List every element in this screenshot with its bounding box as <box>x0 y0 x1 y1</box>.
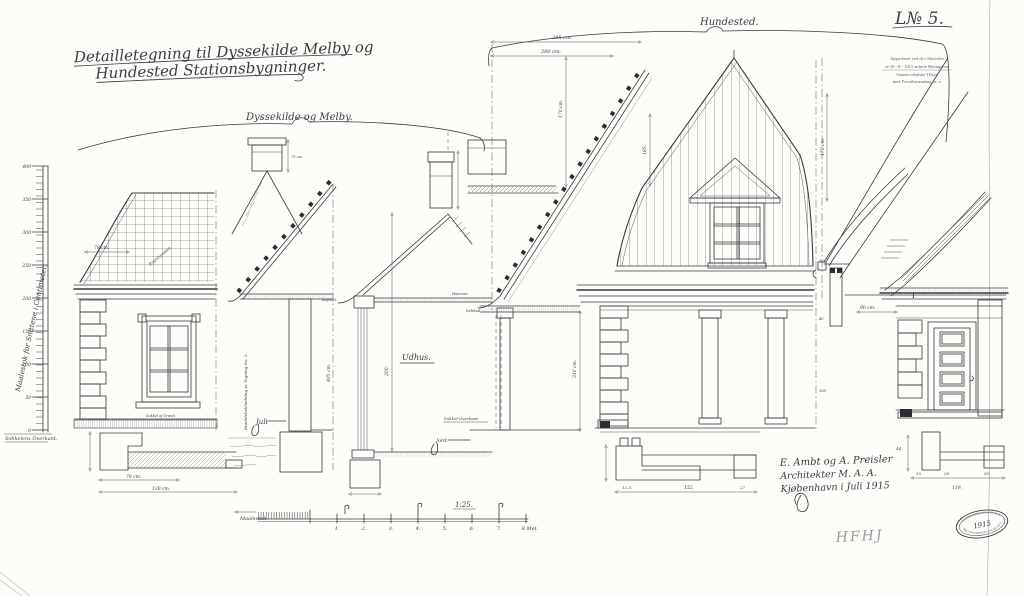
ruler-base-label: Sokkelens Overkant. <box>5 436 58 442</box>
scalebar-tick-7: 7. <box>497 526 502 532</box>
litra-number: L№ 5. <box>893 9 952 29</box>
scalebar-tick-6: 6. <box>470 526 475 532</box>
ruler-tick-0: 0 <box>28 428 31 434</box>
ruler-tick-300: 300 <box>22 230 31 236</box>
ruler-tick-350: 350 <box>22 197 31 203</box>
udhus-label: Udhus. <box>402 353 431 362</box>
udhus-label-group: Udhus. <box>400 353 434 363</box>
dim-roof-eave: 78 cm. <box>94 245 110 251</box>
beam-label: Hammer. <box>451 292 468 296</box>
beam-end-mark: I <box>912 291 915 300</box>
scalebar-tick-2: 2. <box>361 526 367 532</box>
ruler-tick-400: 400 <box>21 164 31 170</box>
dim-g109: 109. <box>819 389 827 393</box>
scalebar-tick-4: 4. <box>415 526 421 532</box>
drawing-canvas: Detailletegning til Dyssekilde Melby og … <box>0 0 1024 596</box>
indskud-label: Indskud. <box>465 309 481 313</box>
approval-line2: af 16 - 8 - 1915 anførte Betingelser <box>885 64 949 69</box>
dim-g40: 40. <box>818 317 825 321</box>
dim-post-height: 200. <box>384 365 390 377</box>
dim-50: 50. <box>984 471 990 476</box>
right-group-label: Hundested. <box>699 17 759 28</box>
plinth-label: Sokkel af Granit. <box>146 414 176 418</box>
svg-text:Juli: Juli <box>254 418 268 426</box>
pencil-note: HFHJ <box>834 528 884 547</box>
approval-line3: Statens tekniske Tilsyn <box>896 72 938 77</box>
ruler-tick-250: 250 <box>21 263 31 269</box>
approval-line1: Approberet ved de i Skrivelse <box>890 56 944 61</box>
dim-130: 130 cm. <box>152 486 171 492</box>
dim-chimney: 70 cm. <box>291 155 303 159</box>
plinth-band <box>74 420 217 428</box>
scalebar-tick-3: 3. <box>389 526 394 532</box>
scalebar-fine-ticks <box>258 512 310 519</box>
scalebar-tick-1: 1. <box>335 526 340 532</box>
capital-label: Kapitæl. <box>321 298 337 302</box>
dim-152: 152. <box>684 485 695 491</box>
wall-annotation: Bræddebeklædning se Tegning No. 3. <box>243 353 248 431</box>
dim-78: 78 cm. <box>126 474 142 480</box>
dim-345: 345 cm. <box>552 35 573 41</box>
drawing-sheet: Detailletegning til Dyssekilde Melby og … <box>0 0 1024 596</box>
dim-170b: 170 cm. <box>820 137 826 156</box>
ruler-tick-200: 200 <box>21 296 31 302</box>
ruler-tick-50: 50 <box>25 395 31 401</box>
dim-15: 15. <box>916 471 922 476</box>
scalebar-tick-8: 8 Met. <box>522 526 539 532</box>
dim-28: 28. <box>943 471 950 476</box>
dim-310: 310 cm. <box>572 359 578 378</box>
dim-170: 170 cm. <box>558 99 564 118</box>
paper <box>0 0 1024 596</box>
dim-90: 90 cm. <box>860 305 876 311</box>
dim-185: 185. <box>642 144 648 155</box>
dim-125: 12,5. <box>622 485 632 490</box>
dim-280: 280 cm. <box>540 49 562 55</box>
dim-44: 44. <box>895 446 902 451</box>
dim-119: 119. <box>952 485 963 491</box>
dim-27: 27. <box>739 485 746 490</box>
sokkel-overkant-label: Sokkel-Overkant. <box>444 416 479 421</box>
scalebar-ratio: 1:25. <box>455 501 473 509</box>
dim-wall-height: 405 cm. <box>326 363 332 383</box>
scalebar-tick-5: 5. <box>443 526 448 532</box>
